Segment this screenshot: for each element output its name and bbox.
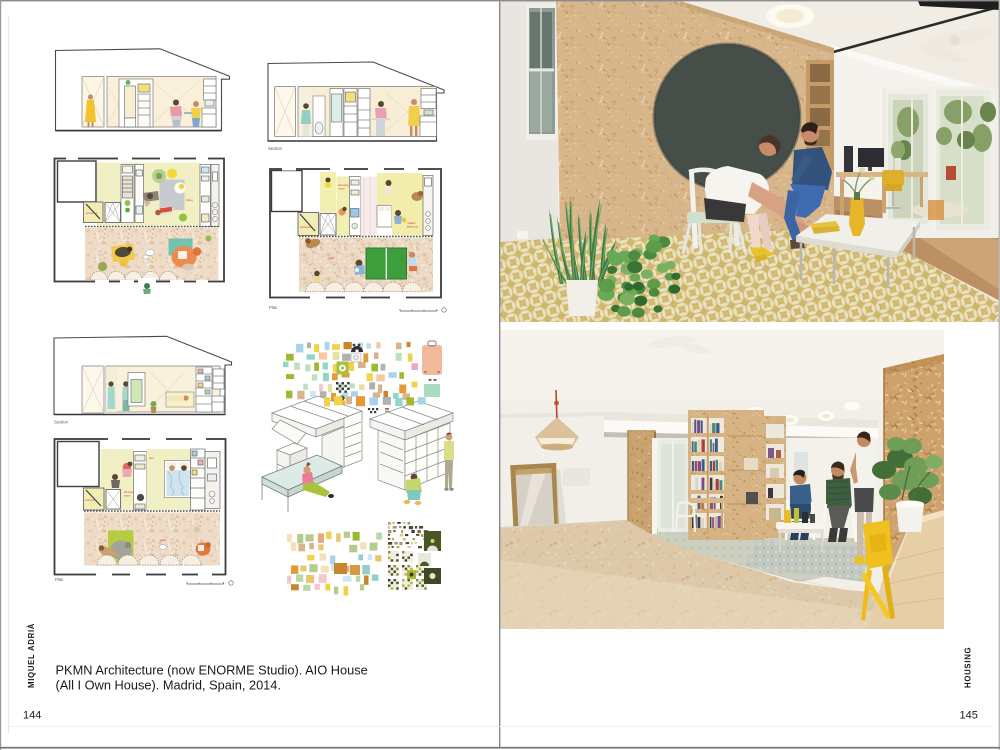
svg-text:bed: bed <box>149 456 154 460</box>
svg-text:144: 144 <box>23 710 41 722</box>
svg-text:entrance: entrance <box>300 225 312 229</box>
svg-text:room: room <box>338 187 345 191</box>
svg-text:MIQUEL ADRIÀ: MIQUEL ADRIÀ <box>27 623 36 688</box>
svg-text:bedroom: bedroom <box>407 225 419 229</box>
svg-text:Plan: Plan <box>269 305 278 310</box>
svg-text:145: 145 <box>960 710 978 722</box>
svg-text:entrance: entrance <box>85 498 97 502</box>
svg-text:HOUSING: HOUSING <box>963 647 972 688</box>
svg-text:entrance: entrance <box>86 211 98 215</box>
svg-text:Plan: Plan <box>55 577 64 582</box>
svg-text:living: living <box>186 198 193 202</box>
svg-text:room: room <box>124 494 131 498</box>
svg-text:(All I Own House). Madrid, Spa: (All I Own House). Madrid, Spain, 2014. <box>56 678 281 693</box>
svg-text:patio: patio <box>329 256 336 260</box>
svg-text:patio: patio <box>160 538 167 542</box>
svg-text:Section: Section <box>54 420 69 425</box>
svg-text:Section: Section <box>268 146 283 151</box>
svg-text:PKMN Architecture (now ENORME: PKMN Architecture (now ENORME Studio). A… <box>56 663 368 678</box>
